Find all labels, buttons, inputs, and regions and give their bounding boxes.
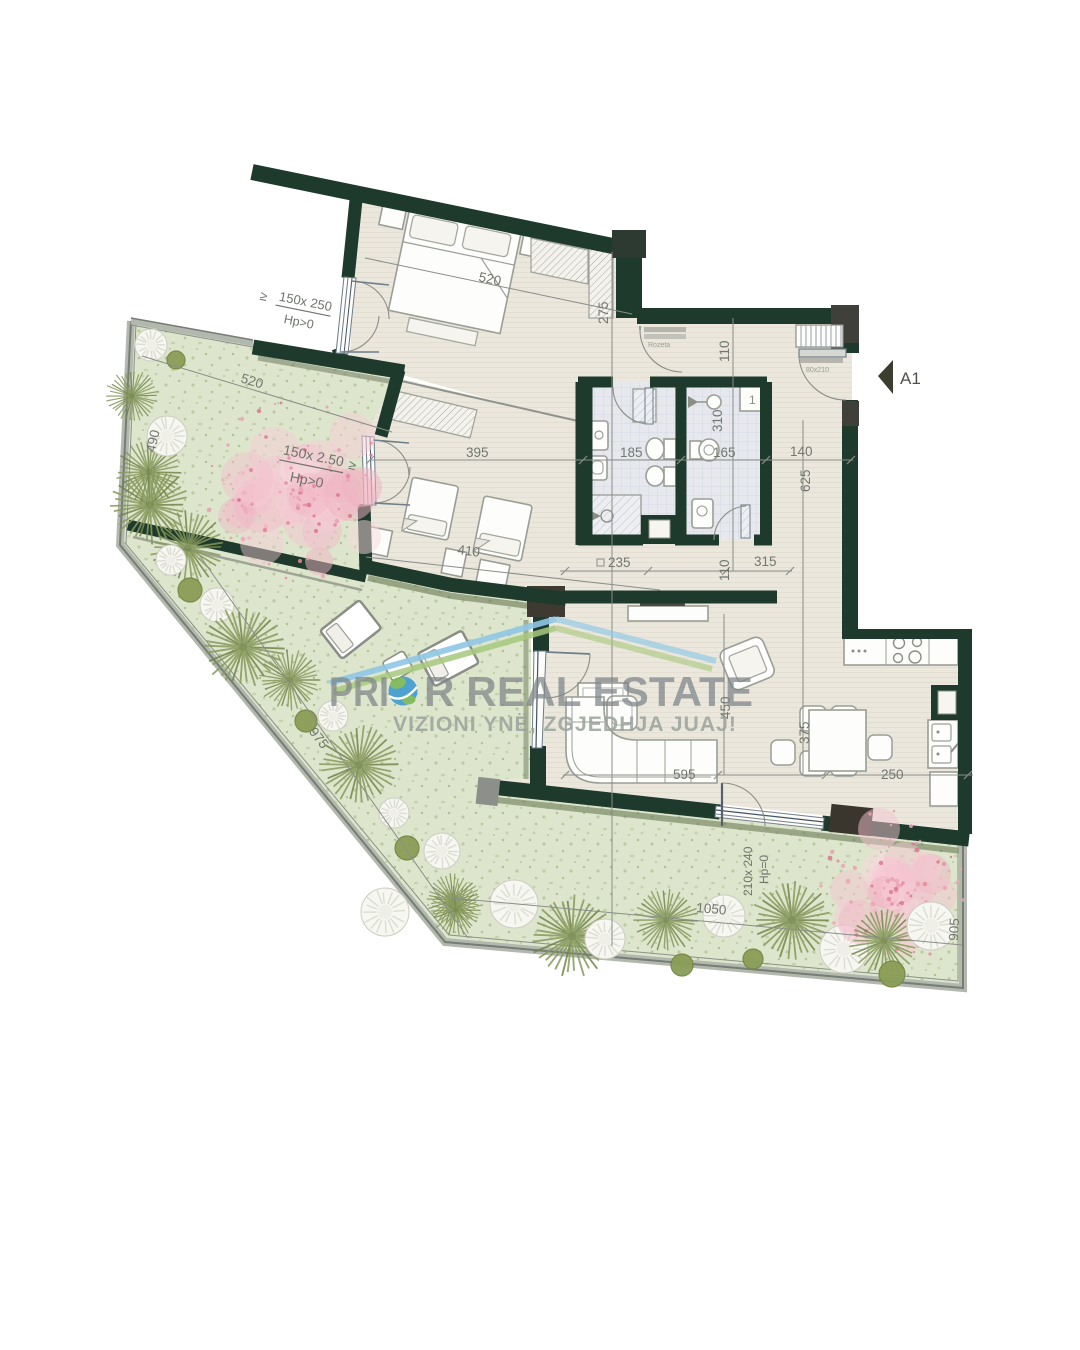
svg-text:PRI: PRI	[329, 668, 389, 715]
svg-text:80x210: 80x210	[806, 367, 829, 374]
svg-text:275: 275	[596, 301, 611, 324]
svg-text:A1: A1	[900, 369, 921, 388]
svg-text:1050: 1050	[696, 900, 727, 918]
svg-text:Hp=0: Hp=0	[757, 855, 771, 884]
svg-text:905: 905	[946, 918, 962, 941]
svg-text:310: 310	[710, 409, 725, 432]
svg-text:210x 240: 210x 240	[741, 846, 755, 896]
svg-text:110: 110	[717, 340, 732, 362]
svg-text:250: 250	[881, 767, 904, 782]
svg-text:235: 235	[608, 555, 631, 570]
svg-text:410: 410	[457, 542, 481, 560]
svg-text:R REAL ESTATE: R REAL ESTATE	[424, 668, 753, 715]
svg-text:110: 110	[717, 559, 732, 581]
svg-text:375: 375	[797, 721, 812, 744]
svg-text:165: 165	[713, 445, 736, 460]
svg-text:315: 315	[754, 554, 777, 569]
svg-text:VIZIONI YNË, ZGJEDHJA JUAJ!: VIZIONI YNË, ZGJEDHJA JUAJ!	[393, 713, 737, 736]
svg-text:185: 185	[620, 445, 643, 460]
svg-text:1: 1	[749, 393, 756, 407]
svg-text:595: 595	[673, 767, 696, 782]
svg-text:140: 140	[790, 444, 813, 459]
svg-text:395: 395	[466, 445, 489, 460]
svg-text:Rozeta: Rozeta	[648, 342, 670, 349]
svg-text:625: 625	[798, 469, 813, 492]
